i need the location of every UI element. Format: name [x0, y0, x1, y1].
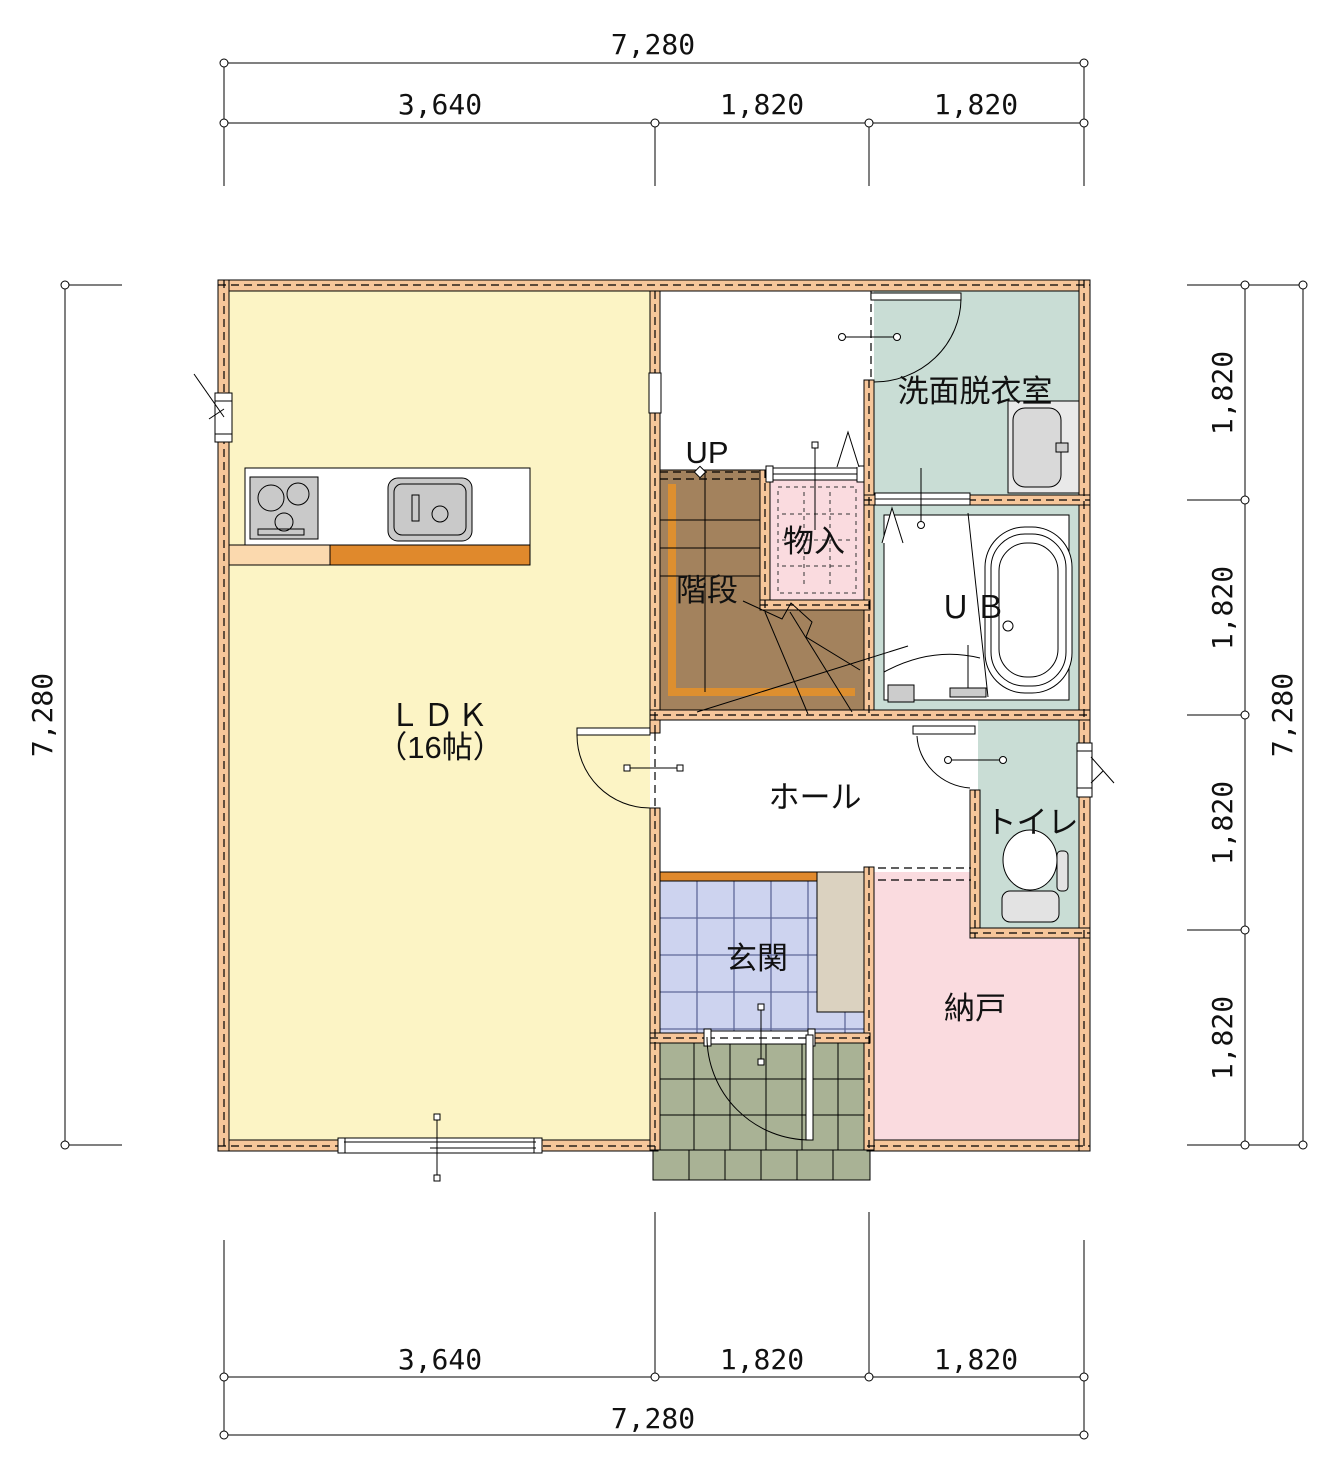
stairs-up-label: UP [685, 435, 728, 470]
dim-bottom-seg1: 3,640 [398, 1343, 482, 1376]
dimension-top: 7,280 3,640 1,820 1,820 [220, 28, 1088, 186]
dim-right-seg1: 1,820 [1206, 351, 1239, 435]
entrance-door-opening [704, 1029, 815, 1046]
dimension-right: 1,820 1,820 1,820 1,820 7,280 [1187, 281, 1307, 1149]
dimension-left: 7,280 [26, 281, 122, 1149]
dim-right-seg2: 1,820 [1206, 566, 1239, 650]
kitchen-sink-icon [388, 478, 472, 541]
dim-bottom-total: 7,280 [611, 1402, 695, 1435]
room-label-ldk-size: （16帖） [376, 730, 503, 765]
washbasin-icon [1008, 401, 1079, 493]
dim-right-seg4: 1,820 [1206, 996, 1239, 1080]
dim-top-total: 7,280 [611, 28, 695, 61]
ldk-hall-opening [649, 373, 661, 413]
floor-plan-drawing: 7,280 3,640 1,820 1,820 3,640 1,820 1,82… [0, 0, 1336, 1472]
kitchen-counter [229, 468, 530, 565]
entrance-step-edge [660, 872, 817, 881]
dim-right-total: 7,280 [1266, 673, 1299, 757]
dim-right-seg3: 1,820 [1206, 781, 1239, 865]
dim-left-total: 7,280 [26, 673, 59, 757]
kitchen-counter-front [330, 545, 530, 565]
kitchen-half-wall [229, 545, 330, 565]
room-label-ldk: ＬＤＫ [389, 698, 491, 733]
dim-bottom-seg2: 1,820 [720, 1343, 804, 1376]
room-label-toilet: トイレ [986, 805, 1079, 840]
room-label-entrance: 玄関 [726, 941, 788, 976]
dimension-bottom: 3,640 1,820 1,820 7,280 [220, 1212, 1088, 1439]
dim-top-seg3: 1,820 [934, 88, 1018, 121]
toilet-window-icon [1077, 743, 1114, 797]
dim-top-seg1: 3,640 [398, 88, 482, 121]
dim-top-seg2: 1,820 [720, 88, 804, 121]
room-label-stairs: 階段 [676, 573, 738, 608]
shoe-cabinet [817, 872, 864, 1012]
room-label-washroom: 洗面脱衣室 [898, 374, 1053, 409]
floor-plan-canvas: 7,280 3,640 1,820 1,820 3,640 1,820 1,82… [0, 0, 1336, 1472]
room-label-hall: ホール [769, 780, 862, 815]
room-label-closet: 物入 [783, 524, 845, 559]
room-label-storage: 納戸 [944, 991, 1006, 1026]
dim-bottom-seg3: 1,820 [934, 1343, 1018, 1376]
cooktop-icon [250, 477, 318, 539]
room-label-bath: ＵＢ [940, 590, 1010, 625]
